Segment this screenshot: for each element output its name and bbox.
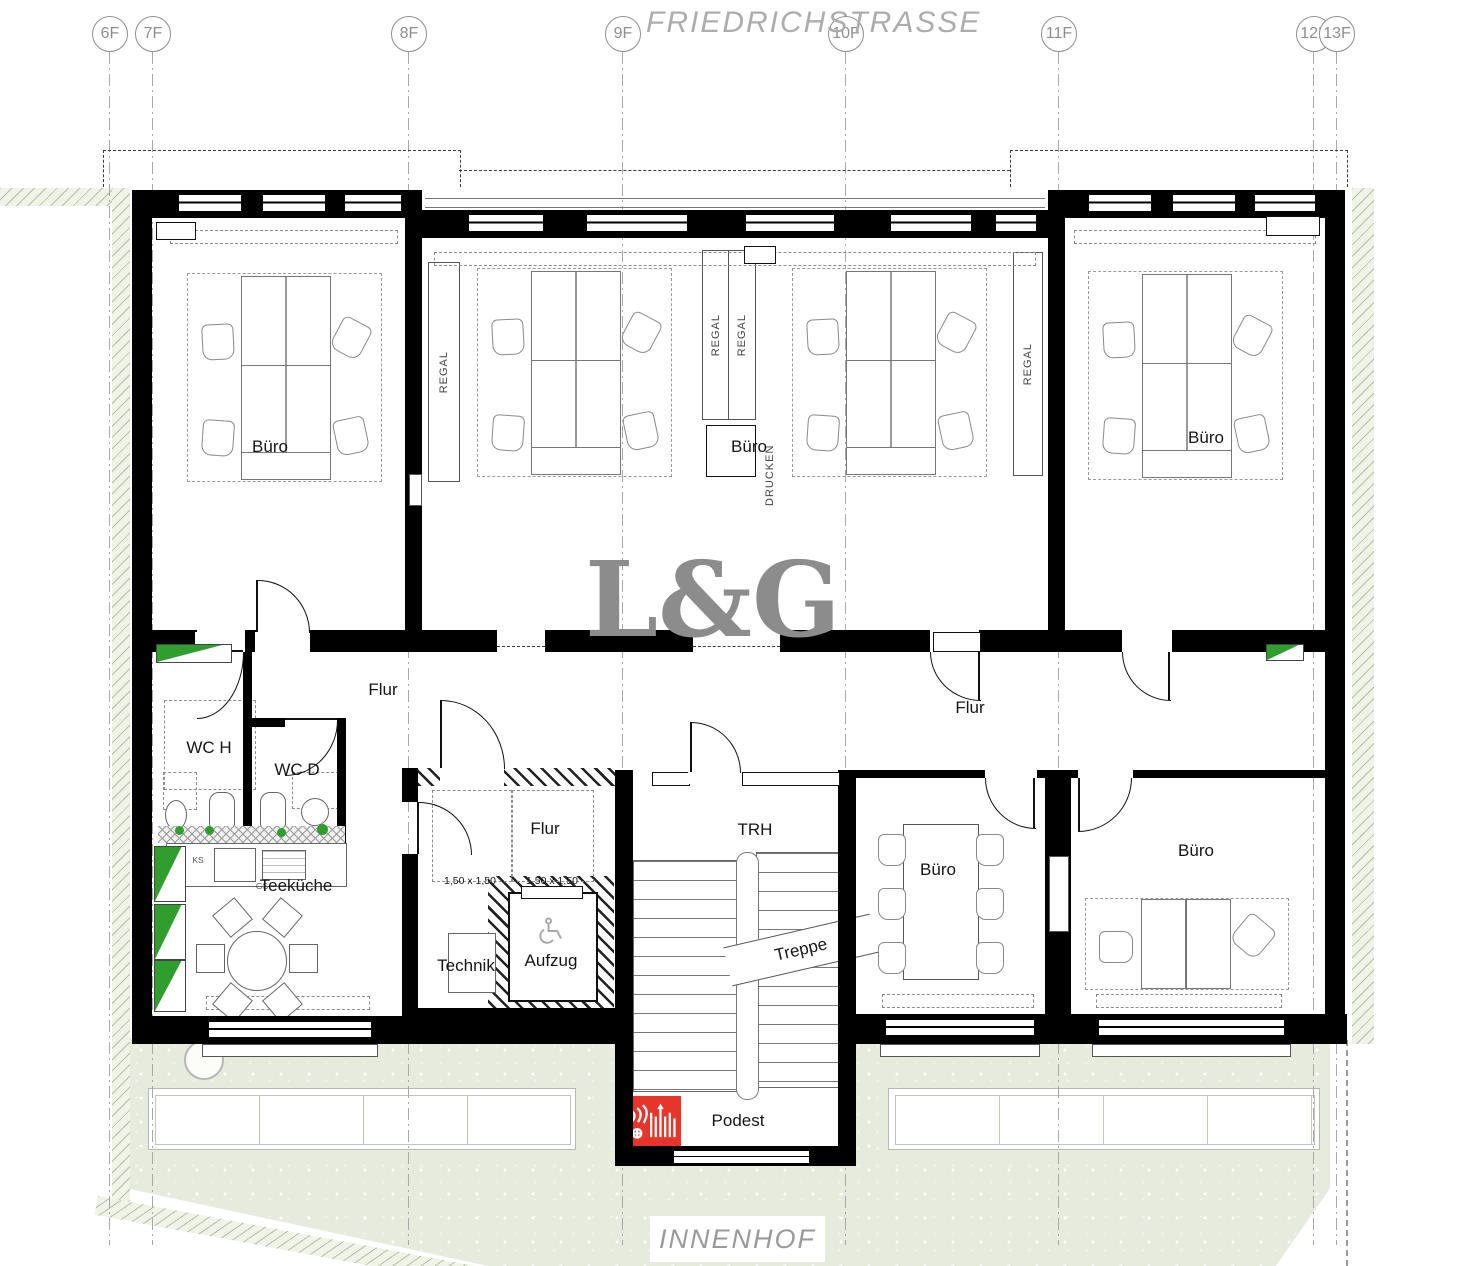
window <box>1172 194 1236 212</box>
interior-wall-right-office <box>1048 210 1065 652</box>
door-swing <box>441 700 505 769</box>
window <box>890 214 972 232</box>
office-chair <box>622 410 661 452</box>
shelf-label: REGAL <box>1022 343 1034 385</box>
office-chair <box>328 315 373 362</box>
stairwell-wall-left <box>615 770 633 1152</box>
floor-drain <box>317 824 328 835</box>
convector-strip <box>170 230 398 244</box>
desk-return <box>846 447 936 475</box>
desk-return <box>531 447 621 475</box>
axis-bubble-11f: 11F <box>1041 16 1077 52</box>
courtyard-label-box: INNENHOF <box>650 1216 825 1262</box>
room-label-flur: Flur <box>530 819 559 839</box>
grid-line-6f <box>109 52 110 1245</box>
door-opening <box>985 770 1035 778</box>
neighbor-building-hatch-right <box>1352 188 1374 1044</box>
vent-louvre <box>1266 644 1304 661</box>
room-top-wall <box>855 770 985 778</box>
planter-left <box>148 1088 576 1150</box>
desk-group <box>1141 899 1231 989</box>
window <box>673 1150 810 1164</box>
entrance-porch <box>744 246 776 264</box>
office-chair <box>878 834 906 866</box>
floor-drain <box>205 826 214 835</box>
office-chair <box>976 888 1004 920</box>
kitchen-appliance-ks <box>214 848 256 882</box>
office-chair <box>618 310 663 357</box>
canopy-outline-left <box>103 150 461 187</box>
workstation-cluster <box>792 268 987 477</box>
axis-bubble-7f: 7F <box>135 16 171 52</box>
desk-group <box>846 271 936 449</box>
shelf-regal: REGAL <box>728 250 756 420</box>
axis-bubble-8f: 8F <box>391 16 427 52</box>
exterior-wall-bottom-technik <box>405 1008 617 1044</box>
watermark: L&G <box>585 548 841 652</box>
shelf-label: REGAL <box>710 314 722 356</box>
toilet <box>209 792 235 828</box>
stairwell-wall-right <box>838 770 856 1152</box>
office-chair <box>976 942 1004 974</box>
vent-louvre <box>154 846 186 902</box>
clearance-dimension: 1,50 x 1,50 <box>526 875 578 887</box>
room-label-podest: Podest <box>712 1111 765 1131</box>
elevator-door <box>521 886 583 899</box>
desk-return <box>1142 450 1232 478</box>
room-label-aufzug: Aufzug <box>525 951 578 971</box>
flur-top-wall-hatch <box>504 768 615 786</box>
office-chair <box>491 318 525 356</box>
door-swing <box>985 778 1036 829</box>
door-opening <box>688 772 742 784</box>
axis-bubble-9f: 9F <box>605 16 641 52</box>
office-chair <box>1229 313 1274 360</box>
office-chair <box>1102 321 1136 359</box>
window <box>178 194 242 212</box>
door-leaf <box>1033 778 1035 828</box>
vent-louvre <box>154 904 186 960</box>
floor-plan: 6F 7F 8F 9F 10F 11F 12F 13F FRIEDRICHSTR… <box>0 0 1472 1266</box>
door-leaf <box>1078 778 1080 831</box>
window <box>208 1021 372 1038</box>
door-opening <box>1122 632 1172 652</box>
office-chair <box>201 323 235 361</box>
office-chair <box>201 419 235 457</box>
canopy-outline-right <box>1010 150 1348 187</box>
desk-group <box>241 276 331 454</box>
shelf-regal: REGAL <box>702 250 730 420</box>
office-chair <box>332 415 371 457</box>
office-chair <box>878 888 906 920</box>
wc-d-right-wall <box>337 718 346 843</box>
room-label-buero: Büro <box>920 860 956 880</box>
planter-right <box>888 1088 1320 1150</box>
fire-equipment-icon <box>625 1096 681 1152</box>
canopy-outline-center <box>459 170 1010 173</box>
interior-wall-left-office <box>405 210 422 652</box>
room-label-buero: Büro <box>1188 428 1224 448</box>
window <box>1088 194 1152 212</box>
door-opening <box>440 768 504 786</box>
office-chair <box>976 834 1004 866</box>
room-label-buero: Büro <box>252 437 288 457</box>
window-sill <box>202 1044 378 1057</box>
exterior-wall-right <box>1325 190 1345 1042</box>
window <box>586 214 688 232</box>
office-chair <box>1233 413 1272 455</box>
window <box>344 194 402 212</box>
street-label: FRIEDRICHSTRASSE <box>646 6 981 40</box>
axis-bubble-6f: 6F <box>92 16 128 52</box>
window-sill <box>880 1044 1040 1057</box>
room-label-flur: Flur <box>955 698 984 718</box>
stairwell-glazing <box>742 772 840 786</box>
floor-drain <box>175 826 184 835</box>
window <box>1254 194 1316 212</box>
site-boundary-dashed <box>1346 1040 1350 1266</box>
office-chair <box>491 414 525 452</box>
floor-drain <box>277 828 286 837</box>
window <box>885 1019 1035 1036</box>
clearance-dimension: 1,50 x 1,50 <box>444 875 496 887</box>
corridor-wall <box>979 630 1122 652</box>
room-label-technik: Technik <box>437 956 495 976</box>
room-label-wc-h: WC H <box>186 738 231 758</box>
neighbor-building-hatch-top-left <box>0 188 130 206</box>
exterior-wall-left <box>132 190 152 1040</box>
door-swing <box>1122 652 1171 701</box>
stair-label: Treppe <box>773 934 829 965</box>
toilet <box>260 792 286 828</box>
wall-niche <box>409 474 422 506</box>
flur-top-wall-hatch <box>418 768 440 786</box>
wheelchair-icon <box>536 916 566 951</box>
window <box>995 214 1037 232</box>
vent-louvre <box>154 960 186 1012</box>
shelf-label: REGAL <box>438 351 450 393</box>
axis-bubble-13f: 13F <box>1319 16 1355 52</box>
room-label-buero: Büro <box>1178 841 1214 861</box>
window <box>468 214 544 232</box>
office-chair <box>878 942 906 974</box>
teekueche-right-wall <box>402 768 418 802</box>
room-label-wc-d: WC D <box>274 760 319 780</box>
door-swing <box>930 652 981 701</box>
stairwell-glazing <box>652 772 690 786</box>
wall-opening-dashed <box>497 646 545 649</box>
convector-strip <box>434 252 1036 266</box>
dining-chair <box>196 944 225 973</box>
desk-group <box>1142 274 1232 452</box>
desk-group <box>531 271 621 449</box>
wc-d-top-wall <box>252 718 285 727</box>
meeting-table <box>903 824 979 980</box>
door-swing <box>258 580 310 633</box>
office-chair <box>933 310 978 357</box>
door-leaf <box>978 652 980 700</box>
stair-flight-left <box>633 860 738 1092</box>
window <box>262 194 326 212</box>
wc-divider-wall <box>243 652 252 828</box>
room-label-teekueche: Teeküche <box>260 876 333 896</box>
corner-window-box <box>1266 216 1320 236</box>
wall-niche <box>1049 856 1069 932</box>
dining-chair <box>262 897 303 938</box>
room-label-buero: Büro <box>731 437 767 457</box>
office-chair <box>806 318 840 356</box>
shelf-regal: REGAL <box>428 262 460 482</box>
workstation-cluster <box>1088 271 1283 480</box>
vent-louvre <box>156 644 232 663</box>
teekueche-right-wall <box>402 854 418 1018</box>
door-swing <box>1078 778 1132 832</box>
office-chair <box>1102 417 1136 455</box>
round-table <box>227 931 287 991</box>
window-sill <box>1092 1044 1291 1057</box>
kitchen-label-ks: KS <box>192 855 203 865</box>
dining-chair <box>289 944 318 973</box>
door-leaf <box>1168 652 1170 700</box>
window <box>745 214 835 232</box>
courtyard-label: INNENHOF <box>659 1224 816 1255</box>
workstation-cluster <box>477 268 672 477</box>
corridor-wall <box>309 630 497 652</box>
sink <box>301 798 329 826</box>
office-chair <box>806 414 840 452</box>
sidelight-window <box>933 632 981 652</box>
room-label-trh: TRH <box>738 820 773 840</box>
corner-window-box <box>156 222 196 240</box>
office-chair <box>937 410 976 452</box>
door-opening <box>255 632 310 652</box>
window <box>1098 1019 1285 1036</box>
shelf-label: REGAL <box>736 314 748 356</box>
door-swing <box>691 722 741 773</box>
shelf-regal: REGAL <box>1013 252 1043 476</box>
neighbor-building-hatch-left <box>112 188 130 1208</box>
convector-strip <box>882 994 1034 1008</box>
office-chair <box>1099 931 1133 963</box>
room-top-wall <box>1133 770 1327 778</box>
room-label-flur: Flur <box>368 680 397 700</box>
door-opening <box>1078 770 1133 778</box>
canopy-edge-lines <box>425 198 1045 208</box>
convector-strip <box>1096 994 1282 1008</box>
